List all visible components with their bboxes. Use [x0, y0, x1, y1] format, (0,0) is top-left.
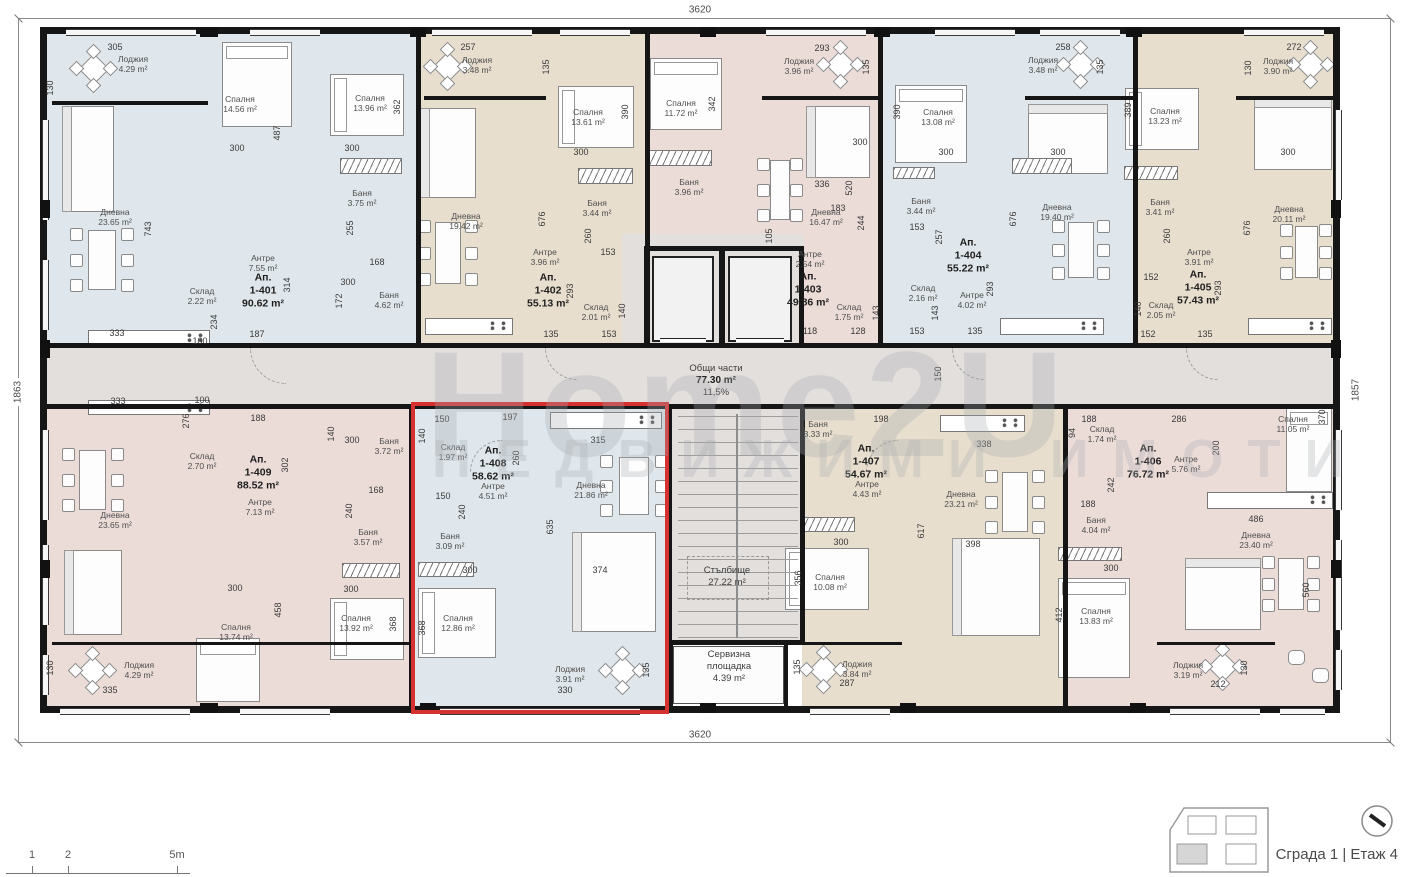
structural-column: [1130, 703, 1146, 713]
dining-chair-icon: [121, 254, 134, 267]
room-area: 2.16 m²: [909, 293, 938, 303]
room-area: 4.51 m²: [479, 491, 508, 501]
dimension-label: 300: [1280, 147, 1295, 157]
room-name: Баня: [1082, 515, 1111, 525]
overall-dimension-top: 3620: [686, 5, 714, 16]
window: [250, 29, 320, 36]
dining-table-icon: [1262, 556, 1320, 612]
dimension-label: 300: [852, 137, 867, 147]
room-label: Лоджия3.90 m²: [1263, 56, 1293, 76]
sofa-back: [572, 532, 582, 632]
dining-chair-icon: [111, 448, 124, 461]
room-name: Склад: [188, 286, 217, 296]
service-area-name: Сервизна площадка: [698, 649, 760, 673]
dimension-label: 743: [143, 221, 153, 236]
room-name: Спалня: [1277, 414, 1310, 424]
sofa-back: [1185, 558, 1261, 568]
room-area: 3.57 m²: [354, 537, 383, 547]
stove-burners-icon: [1078, 320, 1100, 331]
dining-chair-icon: [121, 279, 134, 292]
dining-chair-icon: [465, 247, 478, 260]
stove-burners-icon: [999, 417, 1021, 428]
dining-chair-icon: [1052, 267, 1065, 280]
structural-column: [420, 703, 436, 713]
apartment-number: 1-408: [472, 457, 514, 470]
dimension-label: 374: [592, 565, 607, 575]
dining-table-icon: [62, 448, 124, 512]
dining-table-icon: [70, 228, 134, 292]
apartment-prefix: Ап.: [472, 444, 514, 457]
dining-chair-icon: [1032, 521, 1045, 534]
dimension-label: 336: [814, 179, 829, 189]
dimension-label: 94: [1067, 428, 1077, 438]
room-name: Дневна: [944, 489, 978, 499]
dining-chair-icon: [1319, 224, 1332, 237]
sofa-back: [952, 538, 962, 636]
dimension-label: 153: [909, 222, 924, 232]
wardrobe-icon: [1012, 158, 1072, 174]
window: [1040, 29, 1120, 36]
pillow: [654, 62, 718, 75]
stairs-divider: [736, 414, 738, 638]
dining-chair-icon: [1307, 556, 1320, 569]
dimension-label: 276: [181, 413, 191, 428]
room-area: 3.41 m²: [1146, 207, 1175, 217]
window: [440, 708, 560, 715]
stove-burners-icon: [487, 320, 509, 331]
building-floor-label: Сграда 1 | Етаж 4: [1276, 846, 1398, 863]
apartment-area: 76.72 m²: [1127, 469, 1169, 482]
room-label: Антре3.91 m²: [1185, 247, 1214, 267]
room-name: Лоджия: [124, 660, 154, 670]
room-name: Спалня: [441, 613, 475, 623]
room-area: 23.65 m²: [98, 217, 132, 227]
dimension-label: 300: [833, 537, 848, 547]
room-name: Лоджия: [1173, 660, 1203, 670]
apartment-prefix: Ап.: [527, 271, 569, 284]
dimension-label: 300: [343, 584, 358, 594]
loggia-chair-icon: [816, 57, 832, 73]
dimension-label: 128: [850, 326, 865, 336]
room-label: Баня3.72 m²: [375, 436, 404, 456]
apartment-area: 88.52 m²: [237, 480, 279, 493]
apartment-prefix: Ап.: [242, 271, 284, 284]
room-area: 3.19 m²: [1173, 670, 1203, 680]
dimension-label: 135: [1095, 59, 1105, 74]
room-name: Лоджия: [462, 55, 492, 65]
wall-segment: [719, 251, 725, 343]
dining-chair-icon: [1307, 599, 1320, 612]
room-name: Антре: [531, 247, 560, 257]
dimension-label: 150: [434, 414, 449, 424]
overall-dimension-bottom: 3620: [686, 730, 714, 741]
apartment-area: 49.86 m²: [787, 297, 829, 310]
room-area: 2.05 m²: [1147, 310, 1176, 320]
armchair-icon: [1288, 650, 1305, 665]
dimension-label: 335: [102, 685, 117, 695]
apartment-label-1-408: Ап.1-40858.62 m²: [472, 444, 514, 483]
room-label: Дневна20.11 m²: [1273, 204, 1306, 224]
room-area: 4.29 m²: [124, 670, 154, 680]
loggia-chair-icon: [816, 645, 832, 661]
sofa-icon: [420, 108, 476, 198]
stove-burners-icon: [1306, 320, 1328, 331]
room-area: 5.76 m²: [1172, 464, 1201, 474]
structural-column: [40, 200, 50, 218]
room-label: Лоджия3.91 m²: [555, 664, 585, 684]
dining-chair-icon: [1262, 599, 1275, 612]
room-label: Антре5.76 m²: [1172, 454, 1201, 474]
wall-segment: [878, 34, 883, 344]
dimension-label: 152: [1140, 329, 1155, 339]
dining-tabletop: [1068, 222, 1094, 278]
dimension-label: 153: [600, 247, 615, 257]
dimension-label: 272: [1286, 42, 1301, 52]
kitchen-counter-icon: [425, 318, 513, 335]
wall-segment: [409, 408, 413, 706]
wardrobe-icon: [800, 517, 855, 532]
dimension-label: 100: [194, 395, 209, 405]
dining-chair-icon: [1097, 267, 1110, 280]
dimension-label: 486: [1248, 514, 1263, 524]
room-name: Лоджия: [1028, 55, 1058, 65]
dining-tabletop: [435, 222, 461, 284]
room-label: Спалня13.83 m²: [1079, 606, 1113, 626]
apartment-number: 1-409: [237, 466, 279, 479]
overall-dimension-left: 1863: [13, 378, 24, 406]
room-name: Спалня: [571, 107, 605, 117]
room-name: Антре: [246, 497, 275, 507]
room-area: 13.74 m²: [219, 632, 253, 642]
dimension-label: 338: [976, 439, 991, 449]
dimension-label: 140: [617, 303, 627, 318]
scale-bar: 125m: [0, 845, 240, 877]
scale-tick-label: 2: [65, 849, 71, 861]
bed-icon: [196, 638, 260, 702]
common-area-share: 11,5%: [686, 387, 746, 399]
room-label: Спалня13.96 m²: [353, 93, 387, 113]
window: [560, 29, 630, 36]
dimension-label: 300: [1050, 147, 1065, 157]
dimension-label: 135: [967, 326, 982, 336]
structural-column: [410, 27, 426, 37]
dimension-label: 135: [861, 59, 871, 74]
dimension-label: 398: [965, 539, 980, 549]
apartment-area: 55.22 m²: [947, 263, 989, 276]
dimension-line-top: [18, 18, 1390, 19]
room-area: 3.96 m²: [784, 66, 814, 76]
dimension-label: 153: [601, 329, 616, 339]
room-label: Лоджия4.29 m²: [124, 660, 154, 680]
window: [560, 708, 640, 715]
dimension-label: 188: [1081, 414, 1096, 424]
scale-tick-label: 5m: [169, 849, 184, 861]
service-area-label: Сервизна площадка 4.39 m²: [698, 649, 760, 685]
sofa-icon: [62, 106, 114, 212]
room-name: Баня: [1146, 197, 1175, 207]
dimension-label: 260: [583, 228, 593, 243]
window: [935, 29, 1015, 36]
dining-chair-icon: [1280, 267, 1293, 280]
window: [42, 260, 49, 330]
apartment-area: 90.62 m²: [242, 298, 284, 311]
dimension-label: 330: [557, 685, 572, 695]
dining-chair-icon: [757, 209, 770, 222]
stove-burners-icon: [1307, 494, 1329, 505]
room-name: Баня: [348, 188, 377, 198]
sofa-icon: [952, 538, 1040, 636]
loggia-chair-icon: [1303, 40, 1319, 56]
room-label: Дневна23.65 m²: [98, 207, 132, 227]
dining-table-icon: [600, 455, 668, 517]
apartment-label-1-402: Ап.1-40255.13 m²: [527, 271, 569, 310]
room-name: Спалня: [813, 572, 847, 582]
window: [1280, 708, 1325, 715]
room-name: Дневна: [1273, 204, 1306, 214]
structural-column: [40, 340, 50, 358]
dimension-label: 150: [435, 491, 450, 501]
common-area-label: Общи части 77.30 m² 11,5%: [686, 363, 746, 399]
room-label: Спалня10.08 m²: [813, 572, 847, 592]
dimension-label: 300: [1103, 563, 1118, 573]
sofa-icon: [572, 532, 656, 632]
structural-column: [1126, 27, 1142, 37]
dimension-label: 240: [457, 504, 467, 519]
window: [42, 430, 49, 520]
window: [1335, 430, 1342, 510]
dimension-label: 140: [326, 426, 336, 441]
room-name: Склад: [1147, 300, 1176, 310]
room-name: Баня: [804, 419, 833, 429]
dining-chair-icon: [757, 184, 770, 197]
room-label: Антре7.55 m²: [249, 253, 278, 273]
dimension-label: 183: [830, 203, 845, 213]
room-name: Спалня: [353, 93, 387, 103]
dimension-label: 300: [462, 565, 477, 575]
room-label: Баня3.57 m²: [354, 527, 383, 547]
dimension-label: 300: [340, 277, 355, 287]
dining-chair-icon: [757, 158, 770, 171]
room-area: 3.33 m²: [804, 429, 833, 439]
structural-column: [1331, 560, 1341, 578]
loggia-chair-icon: [85, 646, 101, 662]
apartment-label-1-407: Ап.1-40754.67 m²: [845, 442, 887, 481]
room-area: 2.70 m²: [188, 461, 217, 471]
dimension-label: 333: [109, 328, 124, 338]
dimension-line-right: [1390, 18, 1391, 743]
wardrobe-icon: [648, 150, 712, 166]
dimension-line-bottom: [18, 742, 1390, 743]
wall-segment: [1157, 642, 1275, 645]
apartment-area: 57.43 m²: [1177, 295, 1219, 308]
room-area: 1.75 m²: [835, 312, 864, 322]
room-label: Спалня11.72 m²: [665, 98, 698, 118]
room-name: Спалня: [1148, 106, 1182, 116]
room-name: Антре: [1172, 454, 1201, 464]
apartment-number: 1-404: [947, 249, 989, 262]
dining-chair-icon: [1280, 246, 1293, 259]
room-area: 3.91 m²: [555, 674, 585, 684]
loggia-chair-icon: [440, 42, 456, 58]
room-area: 3.96 m²: [675, 187, 704, 197]
wall-segment: [1133, 34, 1138, 344]
dimension-label: 333: [110, 396, 125, 406]
common-area-name: Общи части: [686, 363, 746, 375]
window: [240, 708, 330, 715]
apartment-label-1-404: Ап.1-40455.22 m²: [947, 236, 989, 275]
structural-column: [200, 703, 218, 713]
apartment-number: 1-402: [527, 284, 569, 297]
dining-chair-icon: [70, 228, 83, 241]
room-label: Склад1.74 m²: [1088, 424, 1117, 444]
dimension-label: 390: [892, 104, 902, 119]
room-area: 13.96 m²: [353, 103, 387, 113]
room-name: Баня: [375, 290, 404, 300]
room-area: 11.05 m²: [1277, 424, 1310, 434]
dimension-label: 240: [344, 503, 354, 518]
loggia-chair-icon: [615, 646, 631, 662]
sofa-back: [64, 550, 74, 635]
dimension-label: 135: [541, 59, 551, 74]
dimension-label: 152: [1143, 272, 1158, 282]
room-label: Спалня13.23 m²: [1148, 106, 1182, 126]
room-label: Дневна19.42 m²: [449, 211, 483, 231]
apartment-number: 1-401: [242, 284, 284, 297]
apartment-area: 54.67 m²: [845, 469, 887, 482]
dining-chair-icon: [1319, 267, 1332, 280]
dimension-label: 257: [460, 42, 475, 52]
room-area: 3.44 m²: [907, 206, 936, 216]
dining-table-icon: [985, 470, 1045, 534]
room-label: Баня3.75 m²: [348, 188, 377, 208]
dining-chair-icon: [465, 273, 478, 286]
room-name: Лоджия: [1263, 56, 1293, 66]
dining-tabletop: [88, 230, 116, 290]
room-area: 4.62 m²: [375, 300, 404, 310]
armchair-icon: [1312, 668, 1329, 683]
room-area: 19.42 m²: [449, 221, 483, 231]
scale-tick: [32, 866, 33, 873]
scale-tick-label: 1: [29, 849, 35, 861]
apartment-area: 55.13 m²: [527, 298, 569, 311]
dimension-label: 135: [1197, 329, 1212, 339]
dining-table-icon: [757, 158, 803, 222]
room-label: Дневна21.86 m²: [574, 480, 608, 500]
wardrobe-icon: [340, 158, 402, 174]
room-area: 19.40 m²: [1040, 212, 1074, 222]
dimension-label: 362: [392, 99, 402, 114]
dimension-label: 135: [543, 329, 558, 339]
room-area: 13.83 m²: [1079, 616, 1113, 626]
wall-segment: [1025, 96, 1135, 100]
window: [42, 545, 49, 625]
dimension-label: 118: [803, 326, 817, 336]
room-area: 3.75 m²: [348, 198, 377, 208]
room-label: Антре2.54 m²: [796, 249, 825, 269]
window: [1335, 110, 1342, 200]
wall-segment: [1063, 408, 1068, 706]
dimension-label: 188: [250, 413, 265, 423]
dining-chair-icon: [62, 474, 75, 487]
dimension-label: 315: [590, 435, 605, 445]
room-label: Баня3.09 m²: [436, 531, 465, 551]
room-label: Баня4.62 m²: [375, 290, 404, 310]
room-area: 23.21 m²: [944, 499, 978, 509]
apartment-number: 1-407: [845, 455, 887, 468]
dining-chair-icon: [70, 254, 83, 267]
dimension-label: 200: [1211, 440, 1221, 455]
dining-tabletop: [1002, 472, 1028, 532]
dimension-label: 135: [641, 662, 651, 677]
dining-chair-icon: [1032, 470, 1045, 483]
dining-chair-icon: [985, 470, 998, 483]
dining-chair-icon: [790, 209, 803, 222]
room-name: Спалня: [339, 613, 373, 623]
dimension-label: 234: [209, 314, 219, 329]
room-area: 13.08 m²: [921, 117, 955, 127]
elevator-door: [736, 338, 784, 342]
dimension-label: 140: [417, 428, 427, 443]
room-area: 2.54 m²: [796, 259, 825, 269]
room-label: Спалня13.74 m²: [219, 622, 253, 642]
dining-chair-icon: [985, 521, 998, 534]
sofa-back: [806, 106, 816, 178]
window: [66, 29, 196, 36]
dining-chair-icon: [600, 504, 613, 517]
structural-column: [900, 703, 916, 713]
room-area: 13.61 m²: [571, 117, 605, 127]
room-label: Дневна23.65 m²: [98, 510, 132, 530]
window: [1335, 540, 1342, 630]
dining-chair-icon: [1319, 246, 1332, 259]
room-name: Склад: [909, 283, 938, 293]
room-label: Антре3.96 m²: [531, 247, 560, 267]
dimension-label: 300: [227, 583, 242, 593]
dimension-label: 100: [192, 336, 207, 346]
wall-segment: [40, 343, 1334, 348]
room-name: Антре: [796, 249, 825, 259]
dimension-label: 300: [573, 147, 588, 157]
wall-segment: [416, 34, 421, 344]
dining-chair-icon: [600, 455, 613, 468]
dimension-label: 368: [388, 616, 398, 631]
sofa-icon: [1185, 558, 1261, 630]
room-name: Баня: [354, 527, 383, 537]
room-label: Лоджия3.84 m²: [842, 659, 872, 679]
window: [60, 708, 190, 715]
dining-chair-icon: [62, 499, 75, 512]
room-label: Антре4.02 m²: [958, 290, 987, 310]
dimension-label: 172: [334, 293, 344, 308]
window: [810, 708, 890, 715]
apartment-number: 1-405: [1177, 281, 1219, 294]
loggia-chair-icon: [1073, 40, 1089, 56]
dimension-label: 244: [856, 215, 866, 230]
dimension-label: 368: [417, 620, 427, 635]
room-name: Спалня: [921, 107, 955, 117]
dining-table-icon: [1280, 224, 1332, 280]
room-area: 3.90 m²: [1263, 66, 1293, 76]
dimension-label: 212: [1210, 679, 1225, 689]
room-area: 4.29 m²: [118, 64, 148, 74]
room-area: 3.72 m²: [375, 446, 404, 456]
apartment-prefix: Ап.: [1127, 442, 1169, 455]
dimension-label: 389: [1123, 102, 1133, 117]
dimension-label: 487: [272, 125, 282, 140]
room-label: Спалня13.92 m²: [339, 613, 373, 633]
wall-segment: [644, 246, 649, 348]
apartment-prefix: Ап.: [845, 442, 887, 455]
